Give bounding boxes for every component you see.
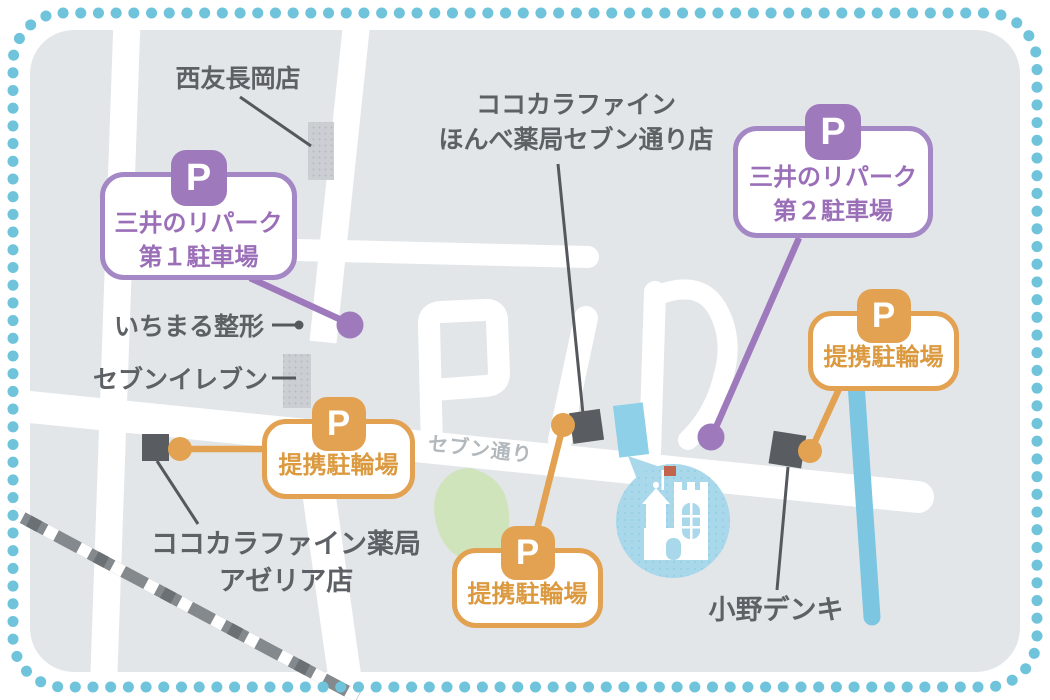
label-cocokara-azeria-line2: アゼリア店 bbox=[138, 563, 434, 600]
label-ichimaru-seikei: いちまる整形 bbox=[112, 310, 264, 345]
callout-parking-1-line2: 第１駐車場 bbox=[105, 241, 292, 275]
label-seven-eleven: セブンイレブン bbox=[90, 363, 268, 398]
callout-bike-parking-left-label: 提携駐輪場 bbox=[267, 445, 410, 480]
parking-icon: P bbox=[805, 104, 861, 160]
parking-icon: P bbox=[171, 150, 227, 206]
callout-bike-parking-right-label: 提携駐輪場 bbox=[813, 337, 954, 372]
access-map: 西友長岡店 ココカラファイン ほんべ薬局セブン通り店 いちまる整形 セブンイレブ… bbox=[0, 0, 1050, 700]
label-seiyu-nagaoka: 西友長岡店 bbox=[128, 62, 348, 97]
callout-parking-1-line1: 三井のリパーク bbox=[105, 207, 292, 241]
callout-parking-2: P 三井のリパーク 第２駐車場 bbox=[733, 126, 933, 238]
callout-bike-parking-right: P 提携駐輪場 bbox=[808, 311, 959, 391]
parking-icon: P bbox=[857, 289, 911, 343]
label-cocokara-honbe-line1: ココカラファイン bbox=[420, 88, 732, 123]
label-cocokara-honbe-line2: ほんべ薬局セブン通り店 bbox=[420, 123, 732, 158]
label-cocokara-azeria-line1: ココカラファイン薬局 bbox=[138, 526, 434, 563]
parking-icon: P bbox=[501, 526, 555, 580]
parking-icon: P bbox=[312, 397, 366, 451]
callout-parking-1: P 三井のリパーク 第１駐車場 bbox=[100, 172, 297, 280]
callout-bike-parking-center: P 提携駐輪場 bbox=[452, 548, 603, 628]
callout-parking-2-line1: 三井のリパーク bbox=[738, 161, 928, 195]
label-cocokara-azeria: ココカラファイン薬局 アゼリア店 bbox=[138, 526, 434, 601]
label-cocokara-honbe: ココカラファイン ほんべ薬局セブン通り店 bbox=[420, 88, 732, 157]
callout-bike-parking-center-label: 提携駐輪場 bbox=[457, 574, 598, 609]
callout-bike-parking-left: P 提携駐輪場 bbox=[262, 419, 415, 499]
label-ono-denki: 小野デンキ bbox=[688, 592, 864, 629]
callout-parking-2-line2: 第２駐車場 bbox=[738, 195, 928, 229]
